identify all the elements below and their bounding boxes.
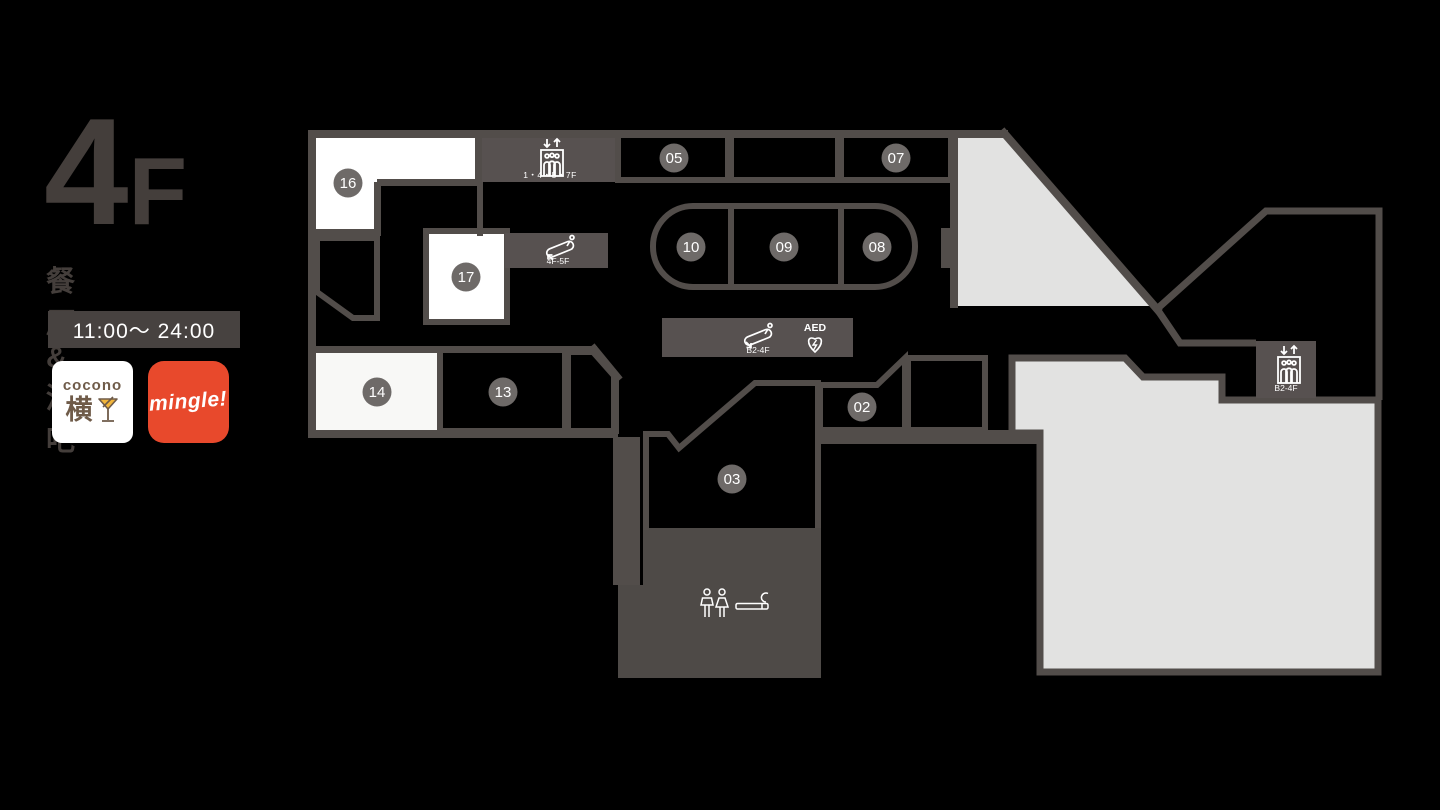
restroom-smoking-area — [618, 528, 821, 678]
elevator-east-label: B2-4F — [1274, 383, 1297, 393]
svg-text:13: 13 — [495, 384, 512, 401]
room-badge-03[interactable]: 03 — [718, 465, 747, 494]
svg-text:05: 05 — [666, 150, 683, 167]
room-badge-09[interactable]: 09 — [770, 233, 799, 262]
wall-room16-right — [475, 137, 482, 183]
room-badge-14[interactable]: 14 — [363, 378, 392, 407]
svg-text:17: 17 — [458, 269, 475, 286]
room-03[interactable] — [646, 383, 818, 530]
room-badge-07[interactable]: 07 — [882, 144, 911, 173]
wall-column — [613, 437, 640, 585]
room-unlabeled-east[interactable] — [908, 358, 985, 430]
open-area-southeast — [1012, 358, 1378, 672]
svg-text:16: 16 — [340, 175, 357, 192]
svg-text:08: 08 — [869, 239, 886, 256]
room-badge-08[interactable]: 08 — [863, 233, 892, 262]
escalator-lower-label: B2-4F — [746, 345, 769, 355]
wall-stub — [941, 228, 950, 268]
open-areas — [958, 137, 1378, 672]
wall-room16-leg — [374, 182, 381, 236]
wall-corridor — [477, 182, 483, 236]
wall-room16-leg-bottom — [308, 229, 380, 236]
room-unlabeled-mid[interactable] — [731, 134, 838, 180]
elevator-main-label: 1・4・5・7F — [523, 170, 577, 180]
floor-map: 1・4・5・7F 4F-5F B2-4F AED B2-4F — [0, 0, 1440, 810]
room-badge-02[interactable]: 02 — [848, 393, 877, 422]
wall-east-lower — [1157, 309, 1256, 343]
open-area-northeast — [958, 137, 1152, 306]
room-badge-16[interactable]: 16 — [334, 169, 363, 198]
svg-text:07: 07 — [888, 150, 905, 167]
svg-text:02: 02 — [854, 399, 871, 416]
escalator-upper-label: 4F-5F — [547, 256, 570, 266]
outlined-rooms — [317, 134, 985, 530]
room-unlabeled-west[interactable] — [317, 238, 377, 318]
room-badge-17[interactable]: 17 — [452, 263, 481, 292]
svg-text:03: 03 — [724, 471, 741, 488]
wall-room16-bottom — [377, 179, 482, 186]
svg-text:09: 09 — [776, 239, 793, 256]
room-badge-10[interactable]: 10 — [677, 233, 706, 262]
wall-island-divider-1 — [728, 206, 734, 287]
room-badge-13[interactable]: 13 — [489, 378, 518, 407]
aed-label: AED — [804, 322, 827, 334]
svg-text:14: 14 — [369, 384, 386, 401]
room-badge-05[interactable]: 05 — [660, 144, 689, 173]
svg-text:10: 10 — [683, 239, 700, 256]
wall-island-divider-2 — [838, 206, 844, 287]
